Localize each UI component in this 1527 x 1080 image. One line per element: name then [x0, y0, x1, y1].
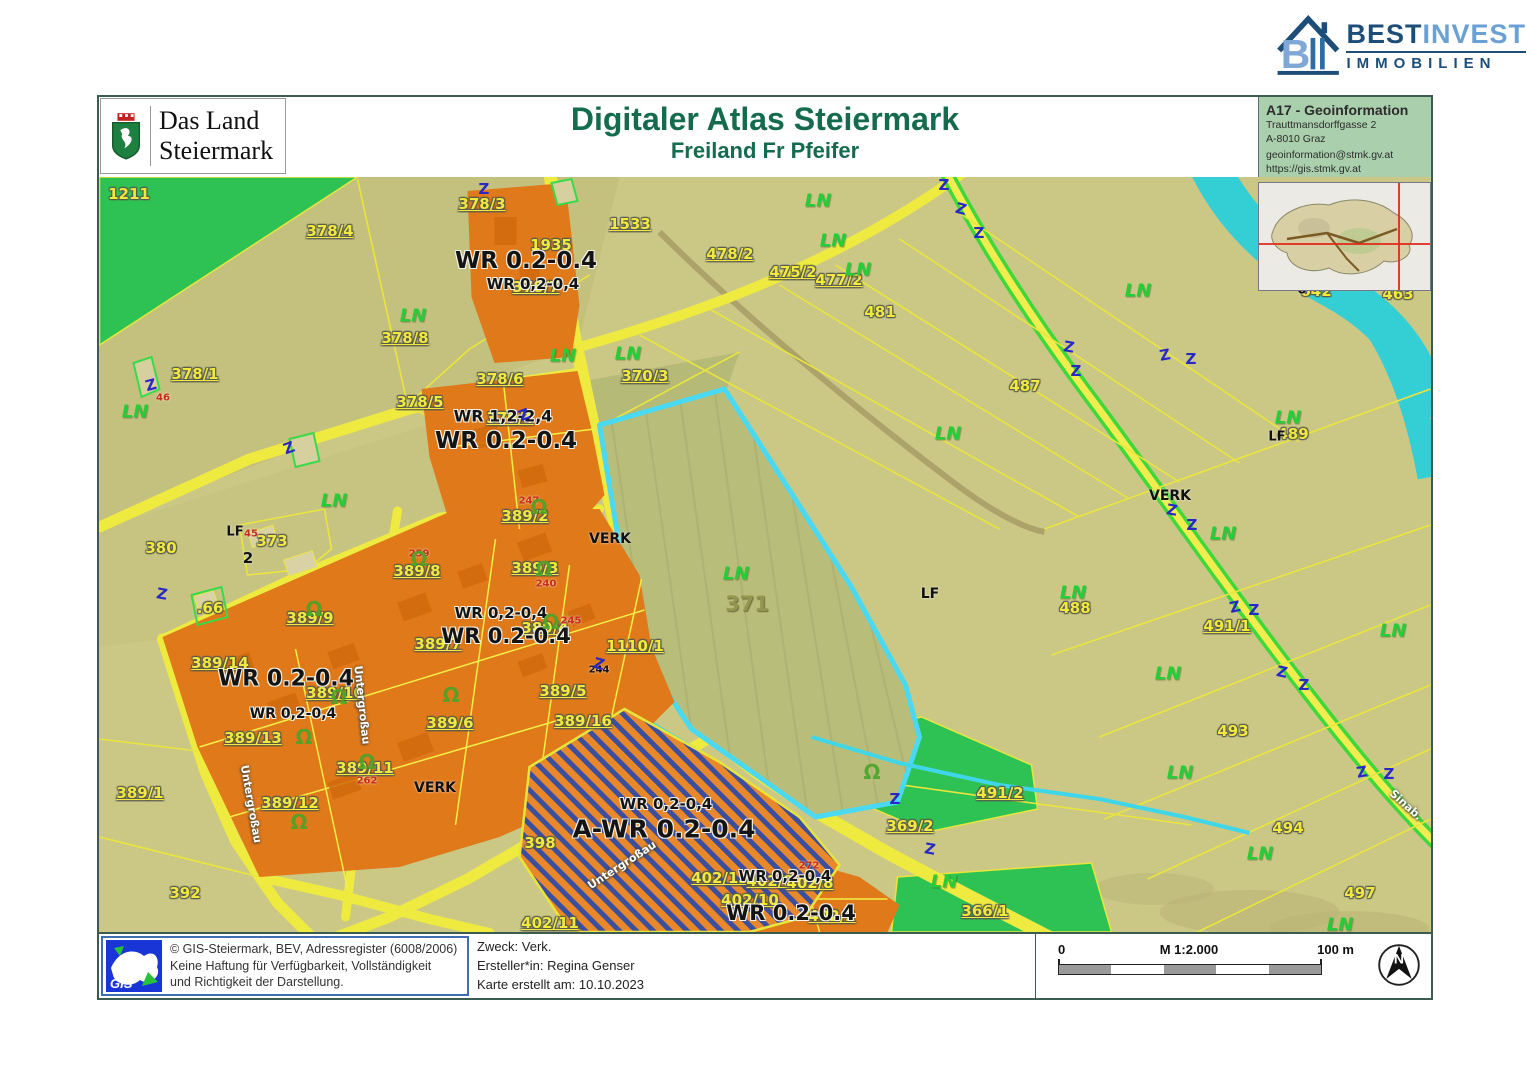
map-label: 389/6	[426, 714, 473, 732]
map-label: 497	[1344, 884, 1375, 902]
map-label: 370/3	[621, 367, 668, 385]
bestinvest-name: BESTINVEST	[1346, 19, 1526, 50]
map-label: Ω	[358, 750, 375, 774]
map-label: WR 1,2-2,4	[454, 407, 553, 426]
map-label: Z	[1062, 337, 1076, 357]
copyright-line3: und Richtigkeit der Darstellung.	[170, 974, 457, 991]
map-label: Z	[923, 839, 937, 859]
map-label: LN	[550, 346, 577, 367]
map-label: 378/4	[306, 222, 353, 240]
map-label: LN	[805, 191, 832, 212]
sheet-footer: GIS © GIS-Steiermark, BEV, Adressregiste…	[99, 932, 1431, 998]
page-title: Digitaler Atlas Steiermark	[399, 101, 1131, 138]
map-label: LN	[1275, 408, 1302, 429]
north-letter: N	[1394, 951, 1404, 967]
map-label: 369/2	[886, 817, 933, 835]
map-label: WR 0,2-0,4	[620, 795, 713, 813]
map-label: Sinab.	[1387, 787, 1425, 823]
map-label: WR 0,2-0,4	[455, 604, 548, 622]
map-label: WR 0,2-0,4	[250, 706, 337, 722]
map-label: Ω	[863, 760, 880, 784]
map-label: LN	[400, 306, 427, 327]
overview-inset-map	[1258, 182, 1431, 291]
scale-ratio-label: M 1:2.000	[1058, 942, 1320, 957]
map-label: 373	[256, 532, 287, 550]
map-label: 245	[561, 616, 582, 627]
map-label: LN	[1327, 915, 1354, 933]
map-label: 481	[864, 303, 895, 321]
map-label: 46	[156, 393, 170, 404]
map-label: 389/5	[539, 682, 586, 700]
map-label: VERK	[589, 531, 631, 547]
map-label: Z	[281, 438, 297, 459]
map-label: 380	[145, 539, 176, 557]
map-label: 487	[1009, 377, 1040, 395]
map-date: Karte erstellt am: 10.10.2023	[477, 976, 644, 995]
map-labels-layer: 1211378/4378/319351533478/2475/2477/2481…	[99, 177, 1431, 932]
map-sheet-frame: Das Land Steiermark Digitaler Atlas Stei…	[97, 95, 1433, 1000]
map-label: 392	[169, 884, 200, 902]
map-label: WR 0.2-0.4	[455, 248, 597, 274]
scale-max-label: 100 m	[1317, 942, 1354, 957]
map-label: 402/11	[521, 914, 579, 932]
map-label: Z	[953, 199, 968, 219]
land-steiermark-logo: Das Land Steiermark	[100, 98, 286, 174]
map-label: Z	[1071, 362, 1082, 380]
map-label: Z	[1384, 765, 1395, 783]
map-label: 389/13	[224, 729, 282, 747]
agency-name: A17 - Geoinformation	[1266, 102, 1424, 118]
gis-logo-icon: GIS	[106, 940, 162, 992]
map-label: 491/1	[1203, 617, 1250, 635]
map-label: 378/1	[171, 365, 218, 383]
map-label: LN	[935, 424, 962, 445]
map-label: 398	[524, 834, 555, 852]
svg-text:B: B	[1281, 31, 1311, 77]
map-label: Ω	[410, 547, 427, 571]
map-label: LN	[1210, 524, 1237, 545]
map-label: LN	[1167, 763, 1194, 784]
bestinvest-logo: B BESTINVEST IMMOBILIEN	[1276, 4, 1526, 86]
map-label: Untergroßau	[351, 665, 372, 745]
map-meta-block: Zweck: Verk. Ersteller*in: Regina Genser…	[477, 938, 644, 995]
map-label: Untergroßau	[585, 838, 658, 892]
map-label: LN	[122, 402, 149, 423]
map-label: 366/1	[961, 902, 1008, 920]
map-label: 262	[357, 776, 378, 787]
map-label: WR 0,2-0,4	[487, 275, 580, 293]
map-label: Ω	[290, 810, 307, 834]
map-label: A-WR 0.2-0.4	[572, 815, 755, 844]
steiermark-coat-of-arms-icon	[107, 111, 145, 161]
map-label: 478/2	[706, 245, 753, 263]
bestinvest-house-icon: B	[1276, 4, 1340, 86]
map-creator: Ersteller*in: Regina Genser	[477, 957, 644, 976]
map-label: LN	[931, 872, 958, 893]
map-label: 45	[244, 529, 258, 540]
map-label: 389/1	[116, 784, 163, 802]
svg-text:GIS: GIS	[110, 976, 133, 991]
map-label: Ω	[542, 610, 559, 634]
scale-bar	[1058, 964, 1322, 975]
map-label: Z	[155, 584, 169, 604]
map-label: LN	[1380, 621, 1407, 642]
map-label: 1533	[609, 215, 651, 233]
agency-info-box: A17 - Geoinformation Trauttmansdorffgass…	[1258, 97, 1431, 182]
map-label: Z	[1299, 676, 1310, 694]
map-label: Z	[1165, 500, 1179, 520]
map-label: Ω	[330, 685, 347, 709]
map-label: Z	[143, 375, 158, 395]
map-label: 493	[1217, 722, 1248, 740]
agency-email: geoinformation@stmk.gv.at	[1266, 149, 1424, 163]
map-label: Z	[1187, 516, 1198, 534]
map-label: .66	[197, 599, 224, 617]
north-arrow: N	[1377, 942, 1421, 993]
map-label: Z	[939, 177, 950, 194]
agency-url: https://gis.stmk.gv.at	[1266, 163, 1424, 177]
sheet-header: Das Land Steiermark Digitaler Atlas Stei…	[99, 97, 1431, 177]
map-label: LN	[820, 231, 847, 252]
map-label: Ω	[530, 495, 547, 519]
map-label: WR 0.2-0.4	[435, 428, 577, 454]
page-subtitle: Freiland Fr Pfeifer	[399, 138, 1131, 164]
map-label: LN	[1060, 583, 1087, 604]
map-label: LN	[845, 260, 872, 281]
map-label: LN	[723, 564, 750, 585]
map-label: LN	[321, 491, 348, 512]
map-label: 378/8	[381, 329, 428, 347]
agency-street: Trauttmansdorffgasse 2	[1266, 119, 1424, 133]
map-label: LN	[615, 344, 642, 365]
map-label: LF	[921, 586, 939, 602]
map-label: Z	[1355, 762, 1369, 782]
map-purpose: Zweck: Verk.	[477, 938, 644, 957]
map-label: 378/6	[476, 370, 523, 388]
map-label: Ω	[535, 557, 552, 581]
map-label: 371	[725, 592, 769, 616]
map-label: LF	[1268, 430, 1285, 445]
map-label: WR 0.2-0.4	[726, 901, 856, 925]
map-label: 1211	[108, 185, 150, 203]
map-label: Ω	[295, 725, 312, 749]
map-label: Z	[1186, 350, 1197, 368]
map-label: Z	[1158, 345, 1172, 365]
map-label: 389/16	[554, 712, 612, 730]
copyright-line2: Keine Haftung für Verfügbarkeit, Vollstä…	[170, 958, 457, 975]
map-label: LF	[226, 525, 243, 540]
map-label: 494	[1272, 819, 1303, 837]
map-label: LN	[1155, 664, 1182, 685]
map-label: LN	[1125, 281, 1152, 302]
map-label: Z	[1249, 601, 1260, 619]
map-label: Z	[479, 180, 490, 198]
map-label: Ω	[305, 597, 322, 621]
map-label: VERK	[414, 780, 456, 796]
land-steiermark-text: Das Land Steiermark	[150, 106, 273, 166]
map-label: 2	[243, 549, 253, 567]
map-label: 1110/1	[606, 637, 664, 655]
scale-box: 0 M 1:2.000 100 m N	[1035, 934, 1431, 998]
map-label: Z	[1275, 662, 1289, 682]
agency-city: A-8010 Graz	[1266, 133, 1424, 147]
map-label: 475/2	[769, 263, 816, 281]
map-label: LN	[1247, 844, 1274, 865]
map-label: 272	[799, 861, 820, 872]
map-label: Z	[1228, 597, 1242, 617]
copyright-line1: © GIS-Steiermark, BEV, Adressregister (6…	[170, 941, 457, 958]
gis-attribution-box: GIS © GIS-Steiermark, BEV, Adressregiste…	[101, 936, 469, 996]
map-label: Z	[974, 224, 985, 242]
map-label: 378/5	[396, 393, 443, 411]
map-label: Ω	[442, 683, 459, 707]
map-label: 491/2	[976, 784, 1023, 802]
map-label: Z	[890, 790, 901, 808]
bestinvest-subtitle: IMMOBILIEN	[1346, 55, 1526, 72]
map-canvas: 1211378/4378/319351533478/2475/2477/2481…	[99, 177, 1431, 932]
